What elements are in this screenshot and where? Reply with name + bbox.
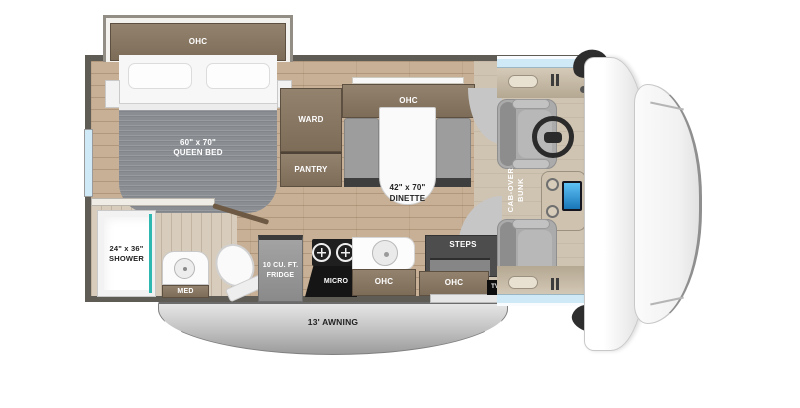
queen-bed-label: 60" x 70" QUEEN BED xyxy=(142,128,254,168)
sink-drain xyxy=(183,267,187,271)
refrigerator: 10 CU. FT. FRIDGE xyxy=(258,235,303,302)
ohc-kitchen-label: OHC xyxy=(353,270,415,295)
nightstand-left xyxy=(105,80,120,108)
dash-vent xyxy=(508,276,538,289)
pillow-right xyxy=(206,63,270,89)
dinette-table: 42" x 70" DINETTE xyxy=(379,107,436,205)
shower-label: 24" x 36" SHOWER xyxy=(98,211,155,296)
pantry-cabinet: PANTRY xyxy=(280,152,342,187)
shower-glass-edge xyxy=(149,214,152,293)
bathroom-wall xyxy=(91,198,215,206)
pillow-left xyxy=(128,63,192,89)
ohc-cabinet-entry: OHC xyxy=(419,271,489,296)
hood xyxy=(634,84,702,324)
shower: 24" x 36" SHOWER xyxy=(97,210,156,297)
microwave: MICRO xyxy=(305,266,357,297)
driver-seat-armrest xyxy=(512,99,550,109)
ohc-entry-label: OHC xyxy=(420,272,488,295)
cab-over-bunk-label: CAB-OVER BUNK xyxy=(478,154,554,226)
dash-vent xyxy=(508,75,538,88)
kitchen-sink xyxy=(372,240,398,266)
cab-window-passenger xyxy=(497,294,592,306)
awning: 13' AWNING xyxy=(158,301,508,355)
faucet-icon xyxy=(384,252,389,257)
steering-wheel xyxy=(532,116,574,158)
medicine-cabinet: MED xyxy=(162,285,209,298)
burner-icon xyxy=(312,243,331,262)
rear-window xyxy=(84,129,93,197)
ohc-cabinet-kitchen: OHC xyxy=(352,269,416,296)
pantry-label: PANTRY xyxy=(281,154,341,186)
dash-vent-bars-icon xyxy=(551,74,559,86)
dinette-window xyxy=(352,77,464,84)
cooktop xyxy=(312,239,355,266)
cab-over-bunk-label-box: CAB-OVER BUNK xyxy=(478,154,554,226)
bathroom-sink xyxy=(174,258,195,279)
dinette-bench-right xyxy=(436,118,471,180)
dash-screen xyxy=(562,181,582,211)
wardrobe-cabinet: WARD xyxy=(280,88,342,152)
medicine-cabinet-label: MED xyxy=(163,286,208,297)
entry-door xyxy=(430,294,502,303)
steering-wheel-hub xyxy=(544,132,562,143)
dinette-bench-left xyxy=(344,118,379,180)
wardrobe-label: WARD xyxy=(281,89,341,151)
queen-bed-label-box: 60" x 70" QUEEN BED xyxy=(142,128,254,168)
awning-label: 13' AWNING xyxy=(159,304,507,367)
floorplan-canvas: 13' AWNING OHC 60" x 70" QUEEN BED WARD … xyxy=(0,0,800,408)
refrigerator-label: 10 CU. FT. FRIDGE xyxy=(259,240,302,301)
passenger-seat-armrest xyxy=(512,219,550,229)
dash-vent-bars-icon xyxy=(551,278,559,290)
